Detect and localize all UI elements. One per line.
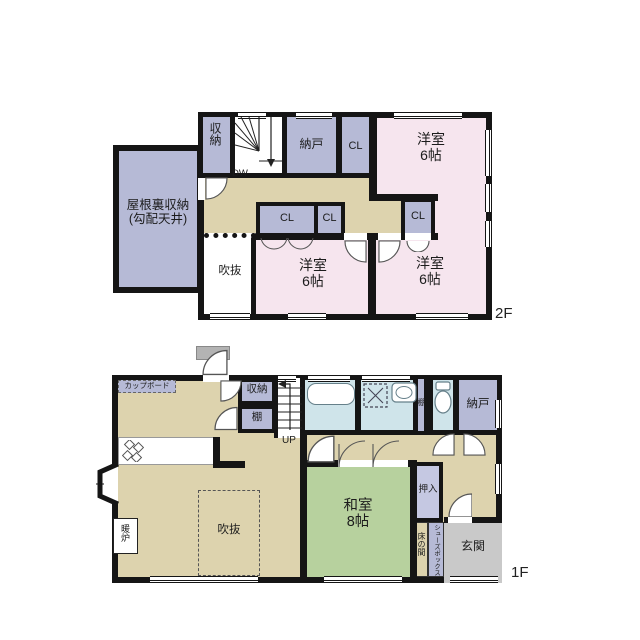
toilet-icon	[433, 381, 453, 415]
storeroom-1f-label: 納戸	[454, 398, 502, 411]
bay-window	[92, 462, 120, 506]
floor-1-tag: 1F	[511, 564, 529, 581]
room-br-size: 6帖	[394, 272, 466, 288]
void-1f-label: 吹抜	[198, 524, 260, 537]
window-1f-top-bath	[308, 375, 350, 382]
window-2f-top-storeroom	[296, 112, 332, 119]
sink-icon	[391, 382, 417, 403]
window-2f-bottom-void	[210, 313, 250, 320]
wall-washitsu-left	[300, 460, 307, 577]
storage-1f-label: 収納	[238, 384, 276, 396]
window-2f-right-1	[485, 130, 492, 176]
attic-storage-label-line1: 屋根裏収納	[113, 198, 203, 212]
shelf-strip-label: 棚	[417, 398, 425, 406]
entrance-door	[450, 576, 498, 583]
window-2f-bottom-room-br	[416, 313, 468, 320]
window-2f-top-room	[394, 112, 462, 119]
stairs-up-icon	[278, 380, 302, 436]
shoebox-label: シューズボックス	[432, 524, 439, 576]
doorgap-2f-room-br	[378, 233, 401, 240]
room-tr-size: 6帖	[395, 148, 467, 164]
tokonoma-label: 床の間	[417, 532, 425, 556]
fireplace-label: 暖炉	[120, 524, 129, 542]
attic-storage-label-line2: (勾配天井)	[113, 212, 203, 226]
door-ldk-hall	[307, 435, 335, 463]
stairs-down-icon	[235, 117, 282, 173]
attic-storage-label: 屋根裏収納 (勾配天井)	[113, 198, 203, 226]
closet-cl-top-label: CL	[337, 140, 374, 152]
room-tr-name: 洋室	[395, 132, 467, 148]
closet-cl-right-label: CL	[401, 210, 435, 222]
genkan-label: 玄関	[444, 540, 502, 553]
door-toilet	[432, 433, 455, 456]
room-br-label: 洋室 6帖	[394, 256, 466, 287]
dw-label: DW	[232, 169, 248, 180]
wall-kitchen-horizontal	[213, 461, 245, 468]
room-tr-label: 洋室 6帖	[395, 132, 467, 163]
window-1f-top-wash	[362, 375, 410, 382]
window-1f-bottom-washitsu	[324, 576, 402, 583]
window-2f-bottom-room-bl	[288, 313, 326, 320]
door-storeroom-1f	[463, 433, 486, 456]
closet-cl-mid1-label: CL	[256, 212, 318, 224]
door-2f-attic	[205, 177, 228, 200]
closet-cl-mid2-label: CL	[314, 212, 345, 224]
corridor-2f-right	[344, 198, 404, 235]
washer-icon	[363, 383, 388, 408]
floor-1-plan: カップボード 収納 棚 UP 棚	[0, 340, 640, 640]
door-2f-cl-mid	[260, 238, 314, 250]
room-bl-name: 洋室	[277, 258, 349, 274]
washitsu-name: 和室	[322, 498, 394, 514]
doorgap-2f-cl-right	[405, 233, 431, 240]
doorgap-genkan	[448, 517, 472, 523]
window-1f-right-hall	[495, 464, 502, 494]
room-br-name: 洋室	[394, 256, 466, 272]
doorgap-2f-attic	[198, 178, 205, 200]
window-2f-right-2	[485, 184, 492, 212]
window-2f-right-3	[485, 221, 492, 247]
backdoor-arc	[202, 349, 228, 376]
oshiire-label: 押入	[413, 485, 443, 496]
cupboard-label: カップボード	[118, 382, 176, 390]
washitsu-label: 和室 8帖	[322, 498, 394, 530]
storeroom-2f-label: 納戸	[282, 138, 341, 151]
floorplan-canvas: 屋根裏収納 (勾配天井) 収納 DW 納戸 CL	[0, 0, 640, 640]
floor-2-tag: 2F	[495, 305, 513, 322]
door-genkan-hall	[448, 493, 472, 517]
stove-icon	[122, 440, 144, 462]
doorgap-2f-room-bl	[344, 233, 367, 240]
wall-2f-bottom-divider	[368, 233, 376, 320]
room-bl-label: 洋室 6帖	[277, 258, 349, 289]
up-label: UP	[276, 435, 302, 446]
door-washitsu-sliding	[338, 440, 408, 467]
window-1f-bottom-ldk	[150, 576, 258, 583]
room-bl-size: 6帖	[277, 274, 349, 290]
door-2f-cl-right	[406, 240, 430, 252]
closet-2f-label: 収納	[209, 122, 221, 146]
door-shelf-kitchen	[214, 405, 238, 432]
wall-2f-room-tr-left	[369, 112, 377, 201]
void-2f-label: 吹抜	[204, 265, 256, 278]
floor-2-plan: 屋根裏収納 (勾配天井) 収納 DW 納戸 CL	[0, 0, 640, 340]
bathtub-icon	[307, 383, 355, 405]
washitsu-size: 8帖	[322, 514, 394, 530]
wall-washitsu-right	[410, 460, 417, 577]
shelf-1f-label: 棚	[238, 412, 276, 424]
wall-2f-room-tr-bottom	[369, 194, 438, 201]
